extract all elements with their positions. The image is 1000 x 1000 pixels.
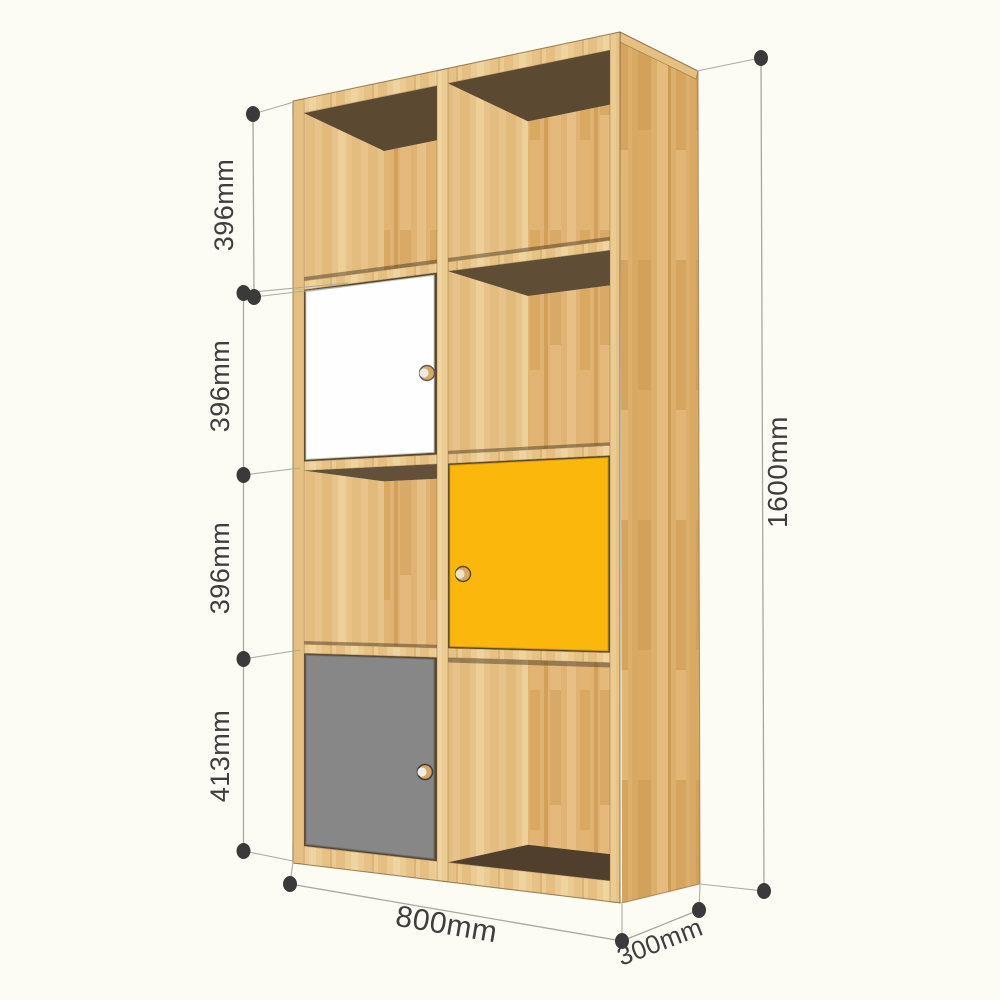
open-cell-row1-right [448, 50, 610, 262]
right-stile [610, 32, 620, 903]
section-height-label-3: 396mm [205, 522, 235, 615]
white-door [306, 275, 434, 459]
open-cell-row1-left [304, 86, 437, 281]
open-cell-row2-right [448, 250, 610, 454]
section-height-label-1: 396mm [209, 159, 239, 252]
white-door-knob [419, 366, 434, 381]
section-height-label-2: 396mm [205, 340, 235, 433]
section-height-label-4: 413mm [205, 710, 235, 803]
yellow-door-knob [455, 567, 470, 582]
depth-label: 300mm [613, 912, 707, 972]
bookshelf-cabinet [293, 32, 700, 903]
center-divider [437, 69, 448, 882]
yellow-door [450, 458, 608, 651]
furniture-dimension-diagram: 396mm 396mm 396mm 413mm 1600mm 800mm 300… [0, 0, 1000, 1000]
left-stile [293, 99, 304, 864]
cabinet-side-panel [620, 32, 700, 903]
total-height-label: 1600mm [762, 416, 793, 528]
height-dim-line-1 [253, 114, 254, 297]
gray-door-knob [417, 765, 432, 780]
bookshelf-diagram-canvas: 396mm 396mm 396mm 413mm 1600mm 800mm 300… [0, 0, 1000, 1000]
open-cell-row3-left [304, 464, 437, 648]
gray-door [306, 655, 434, 859]
open-cell-row4-right [448, 654, 610, 881]
width-label: 800mm [393, 900, 500, 949]
